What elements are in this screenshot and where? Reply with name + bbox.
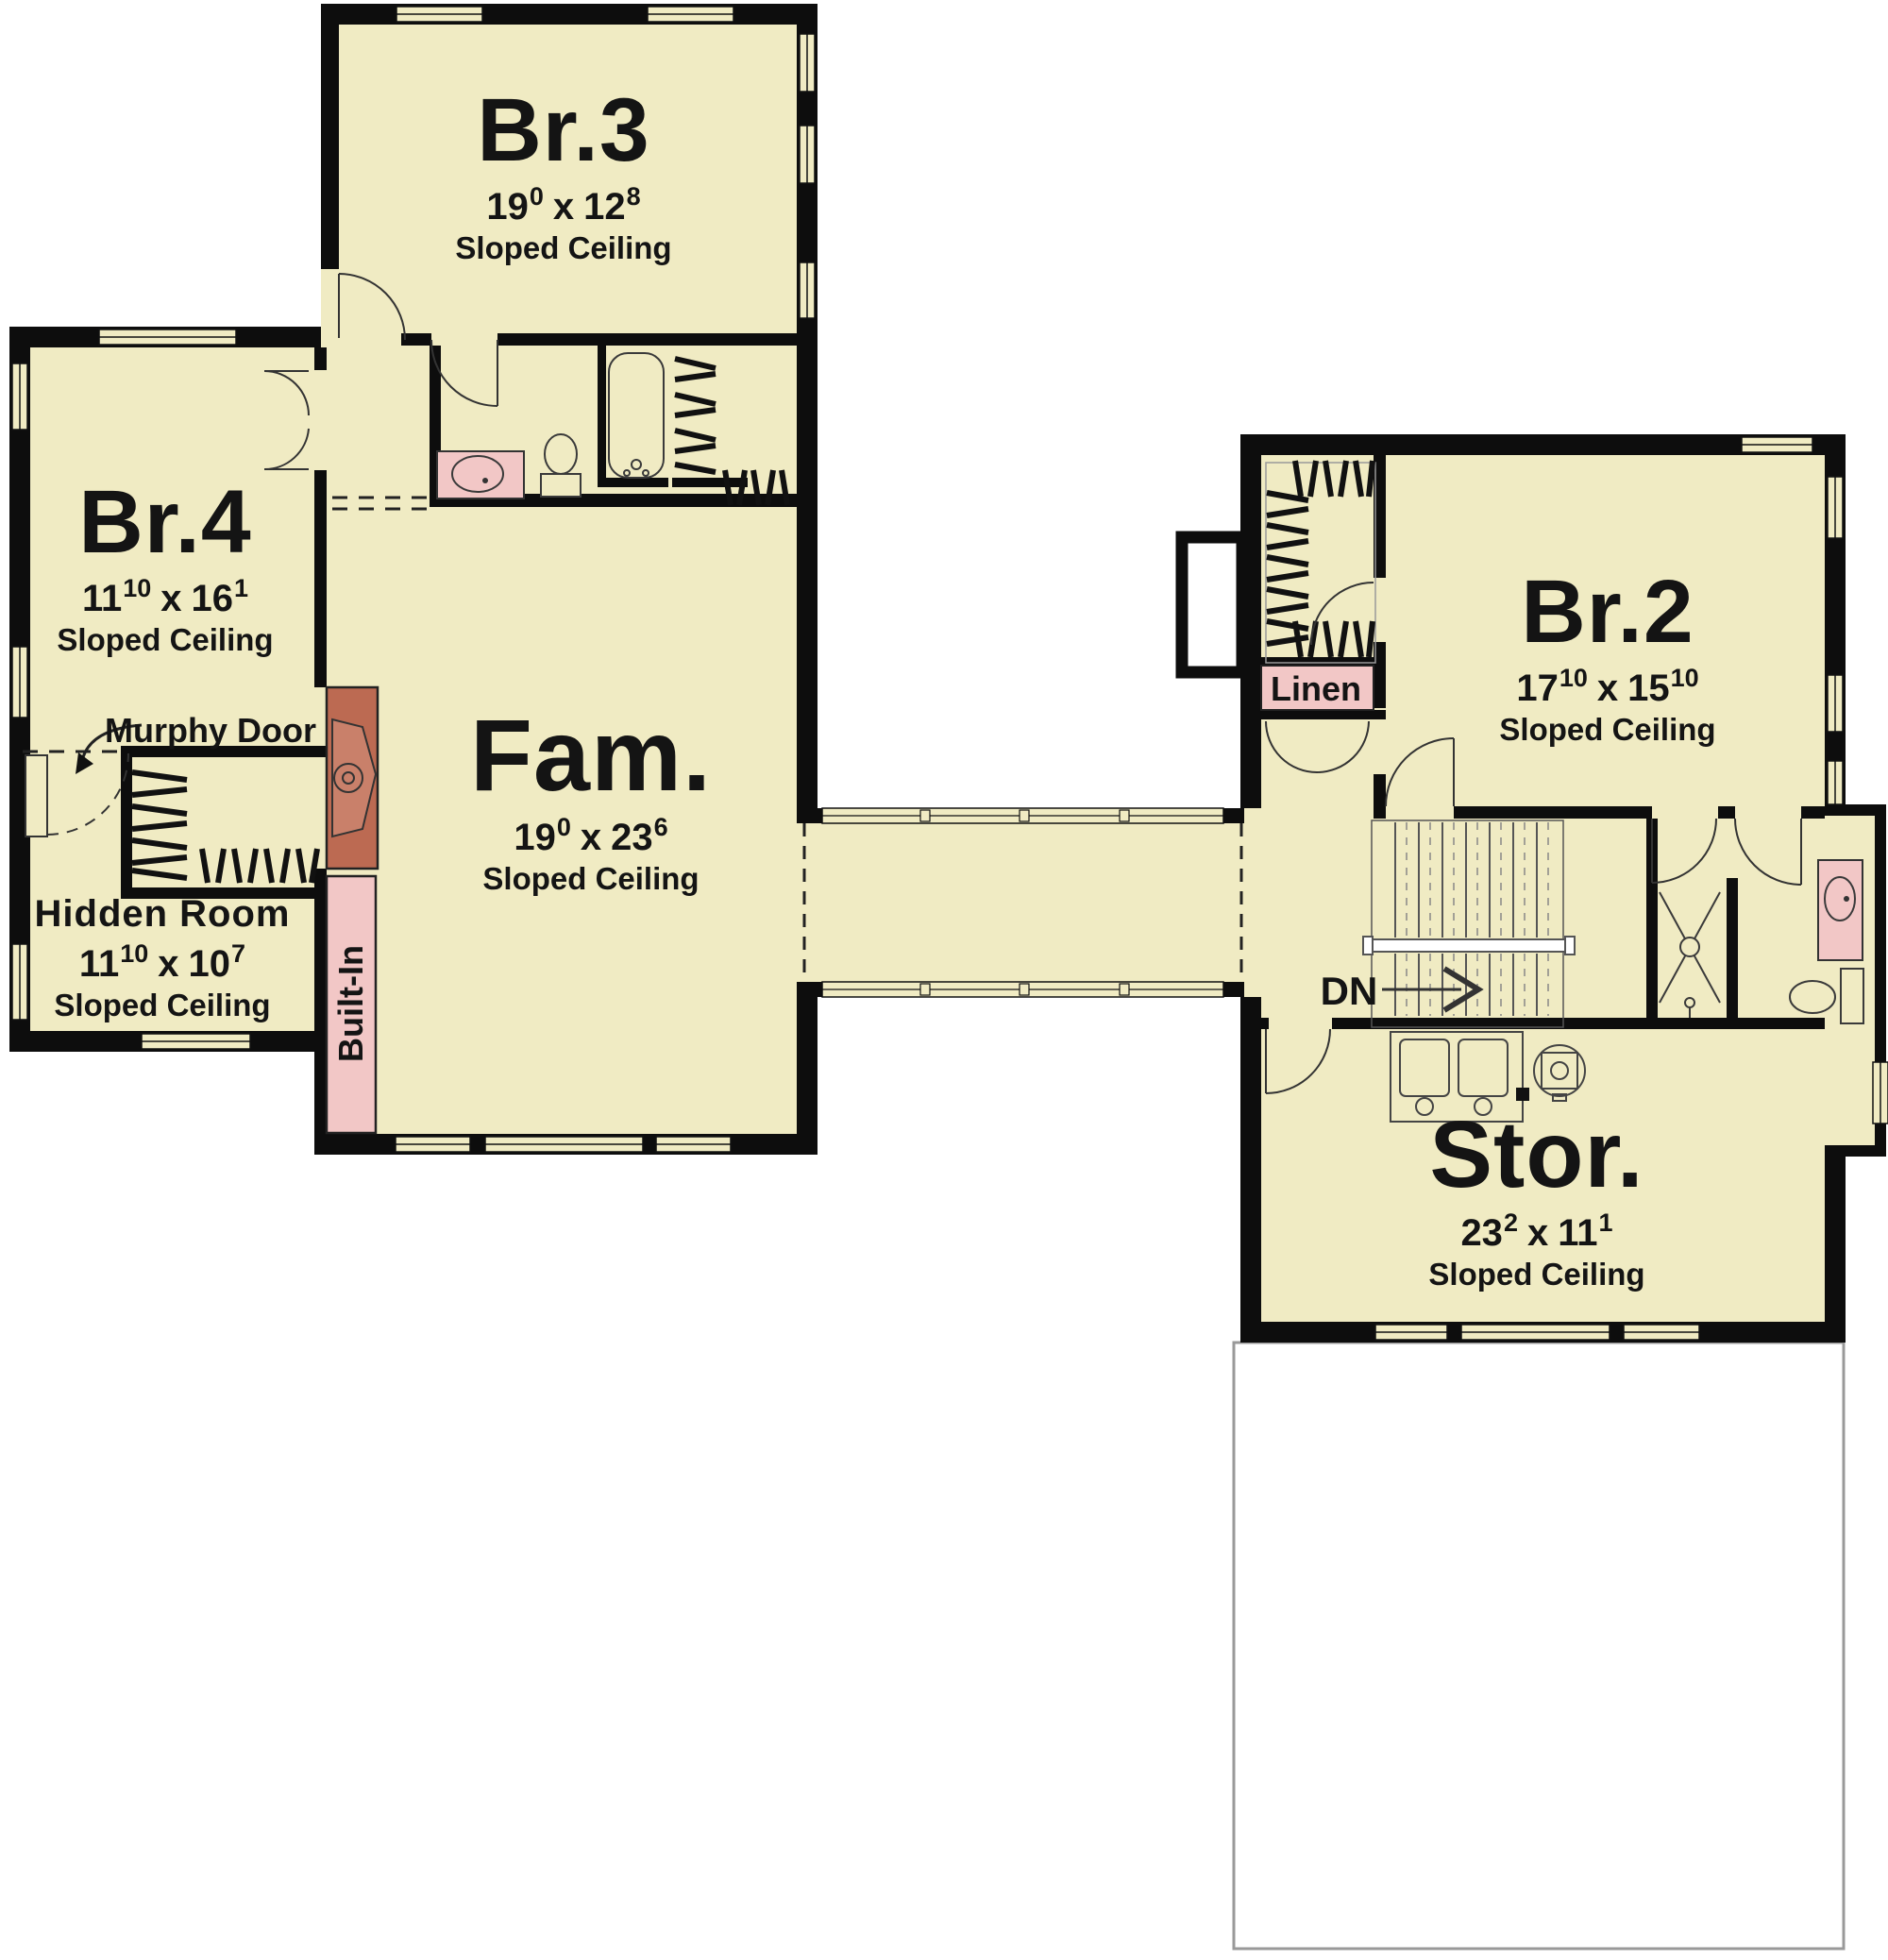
room-dimensions: 190x128 xyxy=(455,184,671,226)
window xyxy=(1742,437,1812,452)
room-dimensions: 190x236 xyxy=(470,815,712,856)
ceiling-note: Sloped Ceiling xyxy=(57,624,273,655)
window xyxy=(656,1137,731,1152)
window xyxy=(800,262,815,318)
room-name: Stor. xyxy=(1428,1107,1644,1203)
room-dimensions: 1110x161 xyxy=(57,576,273,617)
floor-plan: Br.3 190x128 Sloped Ceiling Br.4 1110x16… xyxy=(0,0,1888,1960)
room-label-br4: Br.4 1110x161 Sloped Ceiling xyxy=(57,477,273,655)
room-dimensions: 1710x1510 xyxy=(1499,666,1715,707)
window xyxy=(800,126,815,183)
murphy-door-label: Murphy Door xyxy=(105,711,316,751)
room-dimensions: 1110x107 xyxy=(35,941,291,983)
window xyxy=(396,1137,470,1152)
chimney xyxy=(1182,537,1242,672)
room-dimensions: 232x111 xyxy=(1428,1210,1644,1252)
window xyxy=(396,7,482,22)
window xyxy=(1828,477,1843,538)
room-name: Br.4 xyxy=(57,477,273,568)
window xyxy=(1461,1325,1610,1340)
room-label-hidden-room: Hidden Room 1110x107 Sloped Ceiling xyxy=(35,895,291,1021)
ceiling-note: Sloped Ceiling xyxy=(455,232,671,263)
room-name: Br.2 xyxy=(1499,566,1715,658)
ceiling-note: Sloped Ceiling xyxy=(1428,1259,1644,1290)
room-label-br2: Br.2 1710x1510 Sloped Ceiling xyxy=(1499,566,1715,745)
window xyxy=(1828,761,1843,804)
window xyxy=(1624,1325,1699,1340)
built-in-label: Built-In xyxy=(331,945,371,1062)
window xyxy=(1375,1325,1447,1340)
room-name: Hidden Room xyxy=(35,895,291,934)
room-name: Fam. xyxy=(470,703,712,807)
room-label-family: Fam. 190x236 Sloped Ceiling xyxy=(470,703,712,894)
window xyxy=(800,34,815,92)
toilet xyxy=(541,434,581,497)
window xyxy=(99,329,236,345)
linen-label: Linen xyxy=(1271,669,1361,709)
ceiling-note: Sloped Ceiling xyxy=(470,863,712,894)
window xyxy=(485,1137,643,1152)
ceiling-note: Sloped Ceiling xyxy=(35,989,291,1021)
window xyxy=(1828,675,1843,732)
window xyxy=(12,944,27,1020)
garage-outline xyxy=(1234,1343,1844,1949)
vanity-sink xyxy=(437,451,524,498)
room-label-br3: Br.3 190x128 Sloped Ceiling xyxy=(455,85,671,263)
window xyxy=(648,7,733,22)
vanity-sink xyxy=(1818,860,1863,960)
room-label-storage: Stor. 232x111 Sloped Ceiling xyxy=(1428,1107,1644,1290)
window xyxy=(1873,1062,1888,1124)
floor-drain xyxy=(1516,1088,1529,1101)
bridge-hallway xyxy=(801,808,1244,997)
window xyxy=(12,647,27,718)
window xyxy=(142,1034,250,1049)
window xyxy=(12,363,27,430)
ceiling-note: Sloped Ceiling xyxy=(1499,714,1715,745)
dn-label: DN xyxy=(1321,969,1378,1014)
fireplace xyxy=(327,687,378,869)
room-name: Br.3 xyxy=(455,85,671,177)
